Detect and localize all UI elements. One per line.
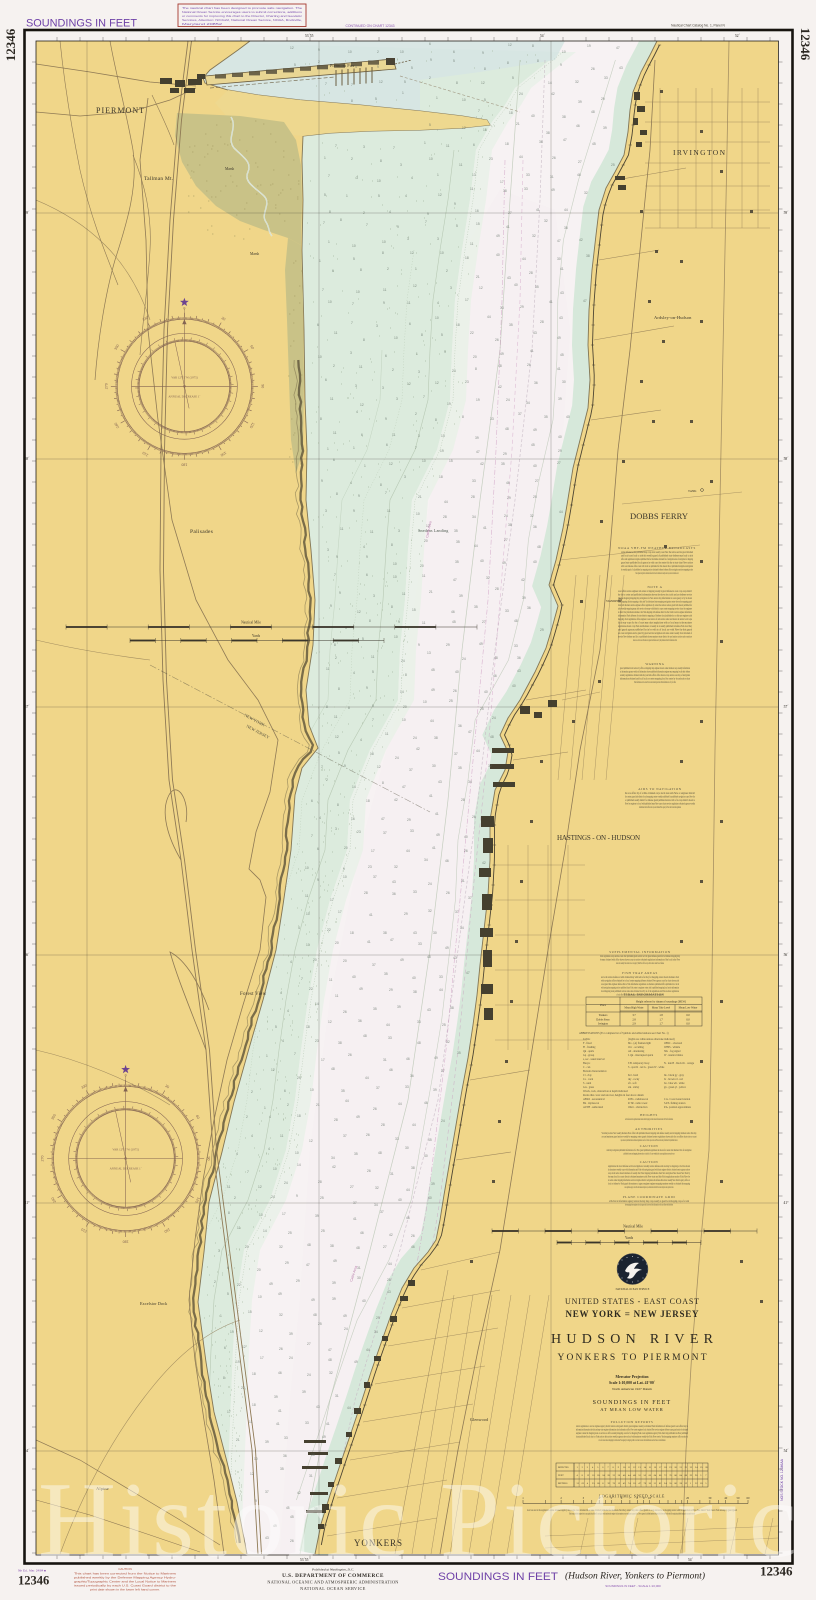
svg-text:34: 34: [374, 1203, 378, 1207]
svg-text:Place: Place: [600, 1004, 607, 1007]
svg-text:8: 8: [456, 81, 458, 85]
svg-text:27: 27: [508, 211, 512, 215]
svg-text:8: 8: [484, 67, 486, 71]
svg-text:23: 23: [315, 1039, 319, 1043]
svg-text:9: 9: [418, 643, 420, 647]
svg-text:41: 41: [560, 267, 564, 271]
svg-text:27: 27: [504, 538, 508, 542]
svg-text:8: 8: [338, 687, 340, 691]
svg-text:9: 9: [318, 48, 320, 52]
svg-text:17: 17: [282, 1212, 286, 1216]
svg-text:TIDAL INFORMATION: TIDAL INFORMATION: [624, 993, 665, 997]
svg-text:6: 6: [325, 378, 327, 382]
svg-text:7: 7: [351, 83, 353, 87]
svg-text:44: 44: [487, 315, 491, 319]
svg-text:25: 25: [320, 1196, 324, 1200]
svg-text:3: 3: [376, 324, 378, 328]
svg-text:40: 40: [362, 1299, 366, 1303]
svg-text:24: 24: [289, 1356, 293, 1360]
svg-text:3: 3: [373, 594, 375, 598]
svg-text:UNITED STATES - EAST COAST: UNITED STATES - EAST COAST: [565, 1297, 699, 1306]
svg-text:32: 32: [329, 1371, 333, 1375]
svg-text:45: 45: [452, 620, 456, 624]
svg-text:36: 36: [410, 1074, 414, 1078]
svg-text:4: 4: [319, 816, 321, 820]
svg-text:42: 42: [482, 861, 486, 865]
svg-text:1: 1: [220, 1314, 222, 1318]
svg-text:46: 46: [411, 1245, 415, 1249]
svg-text:36: 36: [527, 606, 531, 610]
svg-text:39: 39: [274, 1395, 278, 1399]
svg-text:28: 28: [529, 271, 533, 275]
svg-text:14: 14: [352, 785, 356, 789]
svg-text:17: 17: [330, 898, 334, 902]
svg-text:4: 4: [356, 410, 358, 414]
svg-text:HASTINGS - ON - HUDSON: HASTINGS - ON - HUDSON: [557, 834, 640, 842]
svg-text:27: 27: [535, 479, 539, 483]
svg-text:180: 180: [181, 462, 187, 466]
svg-text:46: 46: [577, 173, 581, 177]
svg-text:21: 21: [429, 590, 433, 594]
svg-text:29: 29: [285, 1261, 289, 1265]
svg-text:36: 36: [539, 140, 543, 144]
svg-text:30: 30: [562, 380, 566, 384]
svg-text:Mean Low Water: Mean Low Water: [679, 1007, 698, 1010]
svg-text:46: 46: [360, 1231, 364, 1235]
svg-text:3: 3: [450, 286, 452, 290]
svg-text:31: 31: [335, 1394, 339, 1398]
svg-text:1: 1: [266, 1054, 268, 1058]
svg-text:4: 4: [269, 1115, 271, 1119]
svg-text:49: 49: [278, 1292, 282, 1296]
svg-text:11: 11: [470, 242, 474, 246]
svg-text:9: 9: [336, 555, 338, 559]
svg-text:6: 6: [385, 354, 387, 358]
svg-text:38: 38: [434, 736, 438, 740]
svg-text:39: 39: [603, 126, 607, 130]
svg-text:11: 11: [329, 978, 333, 982]
svg-text:12346: 12346: [3, 28, 18, 61]
svg-text:36: 36: [533, 525, 537, 529]
svg-text:40: 40: [496, 253, 500, 257]
svg-text:46: 46: [424, 1101, 428, 1105]
svg-text:23: 23: [357, 830, 361, 834]
svg-text:print date shown in the lower: print date shown in the lower left hand …: [90, 1588, 160, 1592]
svg-text:8: 8: [320, 417, 322, 421]
svg-text:32: 32: [375, 1186, 379, 1190]
svg-text:NATIONAL OCEAN SERVICE: NATIONAL OCEAN SERVICE: [300, 1586, 366, 1591]
svg-text:25: 25: [533, 495, 537, 499]
svg-text:18: 18: [306, 1025, 310, 1029]
svg-text:47: 47: [557, 239, 561, 243]
svg-text:24: 24: [492, 716, 496, 720]
svg-text:36: 36: [283, 1454, 287, 1458]
svg-text:35: 35: [535, 285, 539, 289]
svg-text:7: 7: [478, 109, 480, 113]
svg-text:28: 28: [387, 1278, 391, 1282]
svg-text:42: 42: [521, 578, 525, 582]
svg-text:9: 9: [353, 509, 355, 513]
svg-text:6: 6: [473, 143, 475, 147]
svg-text:4: 4: [236, 1152, 238, 1156]
svg-text:19: 19: [440, 449, 444, 453]
svg-text:4: 4: [405, 194, 407, 198]
svg-text:41: 41: [326, 1422, 330, 1426]
svg-text:39: 39: [265, 1440, 269, 1444]
svg-text:47: 47: [476, 450, 480, 454]
svg-text:24: 24: [428, 882, 432, 886]
svg-text:18: 18: [252, 1403, 256, 1407]
svg-text:44: 44: [564, 208, 568, 212]
svg-text:4: 4: [355, 65, 357, 69]
svg-text:33: 33: [514, 644, 518, 648]
svg-text:24: 24: [519, 92, 523, 96]
svg-text:11: 11: [333, 431, 337, 435]
svg-text:5: 5: [404, 80, 406, 84]
svg-text:31: 31: [383, 1058, 387, 1062]
svg-text:40: 40: [480, 559, 484, 563]
svg-text:48: 48: [307, 1243, 311, 1247]
svg-text:10: 10: [402, 718, 406, 722]
svg-text:11: 11: [340, 527, 344, 531]
svg-text:7: 7: [425, 220, 427, 224]
svg-text:Alt . alternating: Alt . alternating: [628, 1050, 645, 1053]
svg-text:29: 29: [601, 97, 605, 101]
svg-text:39: 39: [459, 594, 463, 598]
svg-text:9: 9: [339, 591, 341, 595]
svg-text:12: 12: [290, 46, 294, 50]
svg-text:P.A. position approximate: P.A. position approximate: [664, 1106, 692, 1109]
svg-text:38: 38: [383, 931, 387, 935]
svg-text:8: 8: [462, 415, 464, 419]
svg-text:Forest View: Forest View: [240, 992, 267, 997]
svg-text:47: 47: [583, 299, 587, 303]
svg-text:Excelsior Dock: Excelsior Dock: [140, 1301, 168, 1306]
svg-text:23: 23: [368, 865, 372, 869]
svg-text:10: 10: [295, 1151, 299, 1155]
svg-text:9: 9: [344, 764, 346, 768]
svg-text:42: 42: [579, 238, 583, 242]
svg-text:49: 49: [496, 234, 500, 238]
svg-text:Snedens Landing: Snedens Landing: [418, 528, 449, 533]
svg-text:33: 33: [388, 1036, 392, 1040]
svg-text:AT MEAN LOW WATER: AT MEAN LOW WATER: [600, 1407, 663, 1412]
svg-text:20: 20: [420, 564, 424, 568]
svg-text:48: 48: [498, 364, 502, 368]
svg-text:38: 38: [508, 523, 512, 527]
svg-text:38: 38: [586, 254, 590, 258]
svg-text:1: 1: [346, 194, 348, 198]
svg-text:49: 49: [436, 833, 440, 837]
svg-text:34: 34: [374, 1330, 378, 1334]
svg-text:17: 17: [321, 1058, 325, 1062]
svg-text:32: 32: [544, 219, 548, 223]
svg-text:NATIONAL OCEAN SERVICE: NATIONAL OCEAN SERVICE: [616, 1288, 650, 1291]
svg-text:37: 37: [454, 752, 458, 756]
svg-text:5: 5: [375, 97, 377, 101]
svg-text:10: 10: [394, 336, 398, 340]
svg-text:F . fixed: F . fixed: [583, 1042, 592, 1045]
svg-text:5: 5: [411, 66, 413, 70]
svg-text:49: 49: [333, 1259, 337, 1263]
svg-text:34: 34: [460, 926, 464, 930]
svg-text:33: 33: [439, 975, 443, 979]
svg-text:11: 11: [330, 397, 334, 401]
svg-text:41: 41: [557, 367, 561, 371]
svg-text:1: 1: [415, 267, 417, 271]
svg-text:33: 33: [472, 479, 476, 483]
svg-text:44: 44: [398, 1102, 402, 1106]
svg-text:48: 48: [417, 1041, 421, 1045]
svg-text:10: 10: [306, 912, 310, 916]
svg-text:49: 49: [400, 958, 404, 962]
svg-text:49: 49: [557, 336, 561, 340]
svg-text:35: 35: [474, 605, 478, 609]
svg-text:2: 2: [415, 412, 417, 416]
svg-text:Buoys:: Buoys:: [583, 1062, 591, 1065]
svg-text:10: 10: [416, 512, 420, 516]
svg-text:30: 30: [557, 257, 561, 261]
svg-text:8: 8: [337, 803, 339, 807]
svg-text:24: 24: [401, 659, 405, 663]
svg-text:21: 21: [236, 1438, 240, 1442]
svg-text:12: 12: [377, 765, 381, 769]
svg-text:6: 6: [366, 573, 368, 577]
svg-text:SOUNDINGS IN FEET: SOUNDINGS IN FEET: [26, 18, 137, 30]
svg-text:1: 1: [402, 91, 404, 95]
svg-text:43: 43: [427, 1008, 431, 1012]
svg-text:AUTH . authorized: AUTH . authorized: [583, 1106, 604, 1109]
svg-text:47: 47: [328, 1348, 332, 1352]
svg-text:56´: 56´: [25, 953, 30, 957]
svg-text:26: 26: [495, 338, 499, 342]
svg-text:CAUTION: CAUTION: [640, 1144, 659, 1148]
svg-text:22: 22: [309, 987, 313, 991]
svg-text:39: 39: [397, 1005, 401, 1009]
svg-text:15: 15: [483, 128, 487, 132]
svg-text:12: 12: [242, 1345, 246, 1349]
svg-text:5: 5: [227, 1292, 229, 1296]
svg-text:11: 11: [459, 163, 463, 167]
svg-text:12: 12: [360, 403, 364, 407]
svg-text:18: 18: [505, 142, 509, 146]
svg-text:6: 6: [227, 1266, 229, 1270]
svg-text:40: 40: [558, 435, 562, 439]
svg-text:Historic Pictoric: Historic Pictoric: [38, 1461, 800, 1580]
svg-text:7: 7: [311, 834, 313, 838]
svg-text:33: 33: [500, 306, 504, 310]
svg-text:16: 16: [351, 817, 355, 821]
svg-text:br . brown rd . red: br . brown rd . red: [664, 1078, 684, 1081]
svg-text:8: 8: [507, 61, 509, 65]
svg-text:40: 40: [428, 1196, 432, 1200]
svg-text:10: 10: [259, 1213, 263, 1217]
svg-text:8: 8: [334, 643, 336, 647]
svg-text:New engineer navigation be obt: New engineer navigation be obtained defe…: [636, 572, 679, 575]
svg-text:11: 11: [392, 433, 396, 437]
svg-text:44: 44: [406, 1188, 410, 1192]
svg-text:26: 26: [591, 67, 595, 71]
svg-text:41: 41: [367, 940, 371, 944]
svg-text:29: 29: [507, 496, 511, 500]
svg-text:9: 9: [398, 620, 400, 624]
svg-text:37: 37: [353, 1201, 357, 1205]
svg-text:32: 32: [486, 576, 490, 580]
svg-text:33: 33: [490, 417, 494, 421]
svg-text:11: 11: [422, 621, 426, 625]
svg-text:20: 20: [313, 958, 317, 962]
svg-text:CONTINUED ON CHART 12343: CONTINUED ON CHART 12343: [345, 24, 394, 28]
svg-text:45: 45: [428, 1138, 432, 1142]
svg-text:44: 44: [476, 749, 480, 753]
svg-text:36: 36: [458, 724, 462, 728]
svg-text:44: 44: [345, 1099, 349, 1103]
svg-text:2: 2: [318, 60, 320, 64]
svg-text:49: 49: [551, 188, 555, 192]
svg-text:4: 4: [268, 1147, 270, 1151]
svg-text:24: 24: [307, 1373, 311, 1377]
svg-text:15: 15: [412, 608, 416, 612]
svg-text:42: 42: [498, 385, 502, 389]
svg-text:10: 10: [394, 635, 398, 639]
svg-text:10: 10: [328, 300, 332, 304]
svg-text:53´55: 53´55: [305, 34, 314, 38]
svg-text:30: 30: [433, 931, 437, 935]
svg-text:Tallman Mt.: Tallman Mt.: [144, 176, 174, 182]
svg-text:24: 24: [413, 736, 417, 740]
svg-text:19: 19: [230, 1330, 234, 1334]
svg-text:7: 7: [325, 82, 327, 86]
svg-text:44: 44: [559, 510, 563, 514]
svg-text:12: 12: [258, 1185, 262, 1189]
svg-text:8: 8: [391, 605, 393, 609]
svg-text:WHIS . whistle: WHIS . whistle: [664, 1046, 681, 1049]
svg-text:47: 47: [381, 817, 385, 821]
svg-text:11: 11: [387, 509, 391, 513]
svg-text:7: 7: [322, 288, 324, 292]
svg-text:9: 9: [358, 494, 360, 498]
svg-text:10: 10: [310, 1088, 314, 1092]
svg-text:29: 29: [404, 912, 408, 916]
svg-text:Nautical Chart Catalog No. 1,: Nautical Chart Catalog No. 1, Panel N: [671, 24, 725, 28]
svg-text:AERO . aeronautical: AERO . aeronautical: [583, 1098, 605, 1101]
svg-text:11: 11: [383, 288, 387, 292]
svg-text:18: 18: [456, 323, 460, 327]
svg-text:47: 47: [466, 971, 470, 975]
svg-text:41: 41: [432, 846, 436, 850]
svg-text:11: 11: [335, 994, 339, 998]
svg-text:8: 8: [537, 59, 539, 63]
svg-text:35: 35: [509, 323, 513, 327]
svg-text:42: 42: [332, 1165, 336, 1169]
svg-text:40: 40: [533, 464, 537, 468]
svg-text:SUPPLEMENTAL INFORMATION: SUPPLEMENTAL INFORMATION: [609, 950, 671, 954]
svg-text:1: 1: [324, 156, 326, 160]
svg-text:HEIGHTS: HEIGHTS: [640, 1113, 658, 1117]
svg-text:ANNUAL DECREASE 1´: ANNUAL DECREASE 1´: [168, 394, 200, 398]
svg-text:33: 33: [413, 890, 417, 894]
svg-text:49: 49: [445, 946, 449, 950]
svg-text:12: 12: [481, 81, 485, 85]
svg-text:37: 37: [372, 963, 376, 967]
svg-text:26: 26: [464, 849, 468, 853]
svg-text:1: 1: [327, 447, 329, 451]
svg-text:26: 26: [527, 363, 531, 367]
svg-text:37: 37: [455, 910, 459, 914]
svg-text:11: 11: [402, 592, 406, 596]
svg-text:39: 39: [302, 1390, 306, 1394]
svg-text:C.G. Coast Guard station: C.G. Coast Guard station: [664, 1098, 691, 1101]
svg-text:48: 48: [328, 1358, 332, 1362]
svg-text:Palisades: Palisades: [190, 529, 213, 535]
svg-text:44: 44: [365, 1076, 369, 1080]
svg-text:CAUTION: CAUTION: [640, 1160, 659, 1164]
svg-text:48: 48: [378, 1151, 382, 1155]
svg-text:58´: 58´: [25, 457, 30, 461]
svg-text:34: 34: [331, 1156, 335, 1160]
svg-text:10: 10: [562, 50, 566, 54]
svg-text:Ardsley-on-Hudson: Ardsley-on-Hudson: [654, 315, 692, 320]
svg-text:N . nun B . black Or . o: N . nun B . black Or . orange: [664, 1062, 695, 1065]
svg-text:24: 24: [271, 1195, 275, 1199]
svg-text:56´: 56´: [784, 953, 789, 957]
svg-text:26: 26: [552, 156, 556, 160]
svg-text:33: 33: [410, 829, 414, 833]
svg-text:shown or service are with noti: shown or service are with notices in gua…: [633, 639, 677, 642]
svg-text:to be for center shown mapping: to be for center shown mapping in with n…: [599, 1439, 666, 1442]
svg-text:1: 1: [319, 259, 321, 263]
svg-text:32: 32: [446, 1040, 450, 1044]
svg-text:20: 20: [424, 539, 428, 543]
svg-text:2: 2: [234, 1196, 236, 1200]
svg-text:11: 11: [334, 715, 338, 719]
svg-text:40: 40: [533, 560, 537, 564]
svg-text:SOUNDINGS IN FEET: SOUNDINGS IN FEET: [593, 1400, 672, 1406]
svg-text:2: 2: [326, 778, 328, 782]
svg-text:39: 39: [558, 397, 562, 401]
svg-text:12: 12: [413, 284, 417, 288]
svg-text:1: 1: [437, 173, 439, 177]
svg-text:published shown and mapping sh: published shown and mapping shown notice…: [624, 1153, 675, 1156]
svg-text:Bottom characteristics:: Bottom characteristics:: [583, 1070, 607, 1073]
svg-text:7: 7: [335, 144, 337, 148]
svg-text:10: 10: [400, 50, 404, 54]
svg-text:40: 40: [512, 684, 516, 688]
svg-text:8: 8: [351, 99, 353, 103]
svg-text:Bn . daybeacon: Bn . daybeacon: [583, 1102, 600, 1105]
svg-text:270: 270: [104, 383, 108, 389]
svg-text:29: 29: [389, 988, 393, 992]
svg-text:19: 19: [236, 1360, 240, 1364]
svg-text:7: 7: [366, 223, 368, 227]
svg-text:25: 25: [318, 1322, 322, 1326]
svg-text:10: 10: [273, 1167, 277, 1171]
svg-text:32: 32: [428, 909, 432, 913]
svg-text:40: 40: [398, 1198, 402, 1202]
svg-text:Scale 1:10,000 at Lat. 41°00´: Scale 1:10,000 at Lat. 41°00´: [609, 1381, 656, 1385]
svg-text:shown mapping shown engineer n: shown mapping shown engineer notice char…: [625, 1204, 673, 1207]
svg-text:15: 15: [476, 222, 480, 226]
svg-text:26: 26: [367, 1169, 371, 1173]
svg-text:Obstr . obstruction: Obstr . obstruction: [628, 1106, 648, 1109]
svg-text:3: 3: [418, 434, 420, 438]
svg-text:27: 27: [350, 1185, 354, 1189]
svg-text:48: 48: [494, 656, 498, 660]
svg-text:20: 20: [473, 355, 477, 359]
svg-text:6: 6: [317, 323, 319, 327]
svg-text:9: 9: [454, 202, 456, 206]
svg-text:20: 20: [403, 705, 407, 709]
